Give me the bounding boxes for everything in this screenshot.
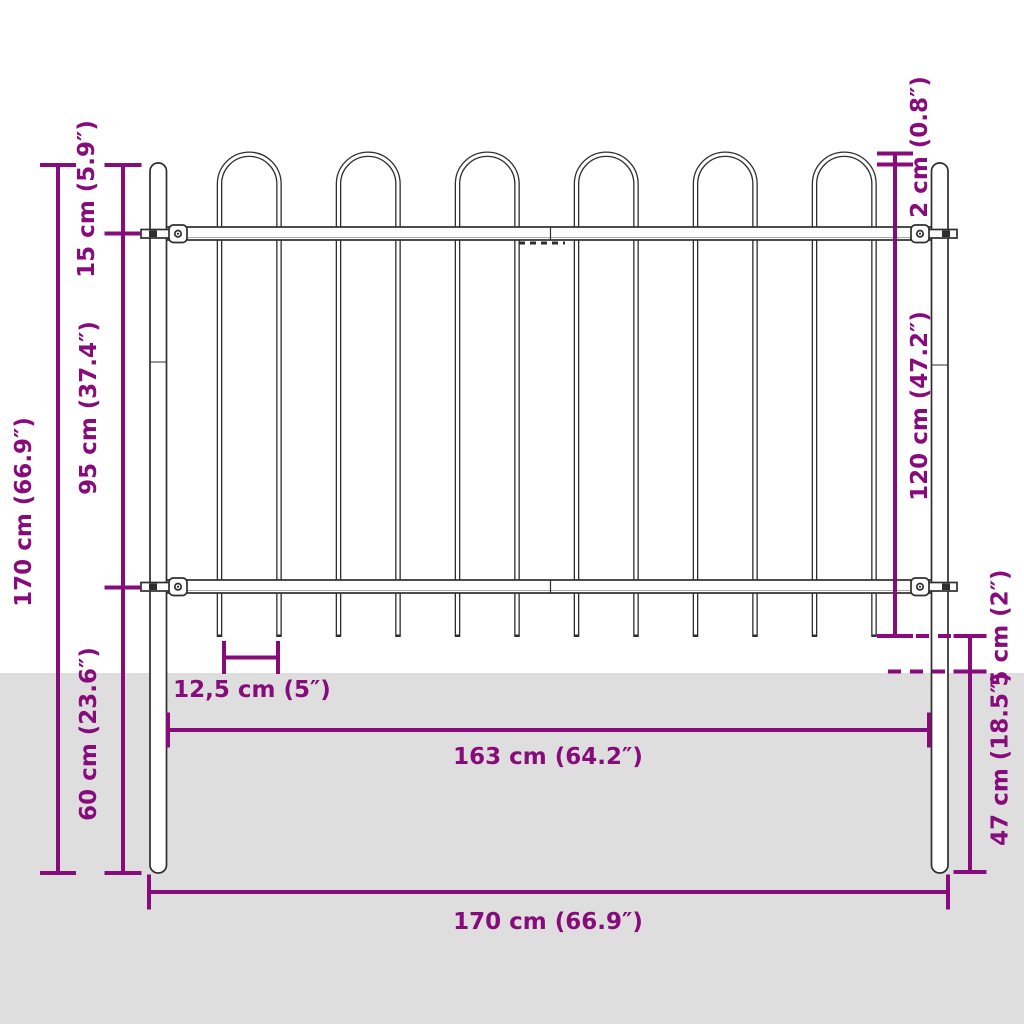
width-total-label: 170 cm (66.9″)	[453, 909, 643, 935]
bracket-pin	[942, 231, 950, 238]
spike-to-ground-label: 5 cm (2″)	[988, 570, 1014, 687]
post-right	[932, 163, 949, 873]
post-left	[150, 163, 167, 873]
fence-dimension-diagram: 170 cm (66.9″) 15 cm (5.9″) 95 cm (37.4″…	[0, 0, 1024, 1024]
bracket-pin	[149, 231, 157, 238]
bracket-pin	[942, 584, 950, 591]
rail-top	[166, 227, 932, 243]
bar-spacing-label: 12,5 cm (5″)	[173, 677, 331, 703]
hoop-section-label: 15 cm (5.9″)	[74, 120, 100, 278]
bracket-pin	[149, 584, 157, 591]
below-rail-label: 60 cm (23.6″)	[76, 647, 102, 821]
height-total-label: 170 cm (66.9″)	[11, 417, 37, 607]
width-inner-label: 163 cm (64.2″)	[453, 744, 643, 770]
rail-bottom	[166, 580, 932, 593]
rail-span-label: 95 cm (37.4″)	[76, 321, 102, 495]
dimension-bar-spacing: 12,5 cm (5″)	[173, 641, 331, 703]
panel-height-label: 120 cm (47.2″)	[907, 311, 933, 501]
diagram-canvas: 170 cm (66.9″) 15 cm (5.9″) 95 cm (37.4″…	[0, 0, 1024, 1024]
hoop-over-post-label: 2 cm (0.8″)	[907, 76, 933, 218]
post-in-ground-label: 47 cm (18.5″)	[988, 672, 1014, 846]
